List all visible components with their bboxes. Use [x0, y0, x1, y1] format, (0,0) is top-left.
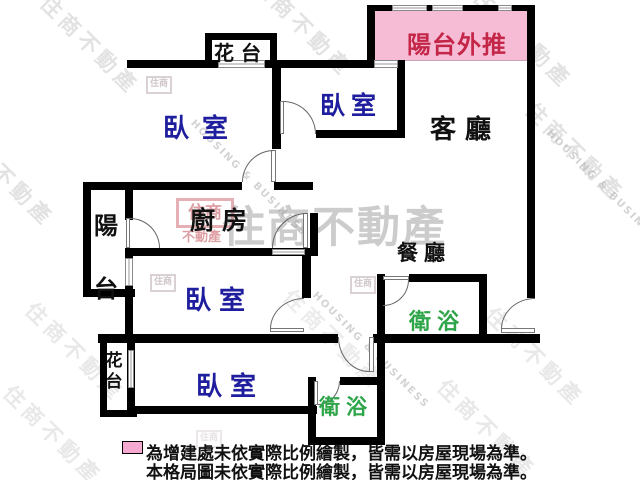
- wall: [397, 60, 405, 138]
- legend-pink-swatch: [122, 441, 143, 454]
- window: [392, 5, 427, 11]
- entrance-door-swing-arc: [501, 298, 535, 329]
- wall: [125, 190, 133, 220]
- watermark-logo-small: 住商: [350, 276, 376, 294]
- wall: [98, 334, 338, 343]
- watermark-brand-diagonal: 住商不動產: [0, 120, 62, 233]
- label-balcony-extension: 陽台外推: [407, 25, 507, 60]
- window: [125, 258, 133, 286]
- label-living-room: 客廳: [430, 109, 500, 146]
- wall: [310, 213, 318, 256]
- door-swing-arc: [283, 101, 316, 134]
- window: [374, 60, 398, 68]
- door-swing-arc: [383, 280, 409, 306]
- label-dining-room: 餐廳: [397, 237, 451, 267]
- door-swing-arc: [130, 218, 160, 248]
- wall: [409, 274, 487, 282]
- watermark-brand-diagonal: 住商不動產: [0, 378, 110, 480]
- door-swing-arc: [242, 150, 274, 182]
- wall: [302, 248, 311, 298]
- window: [432, 5, 463, 11]
- label-flower-bed-left: 花台: [104, 351, 124, 394]
- legend-line2: 本格局圖未依實際比例繪製，皆需以房屋現場為準。: [146, 458, 537, 480]
- label-bathroom2: 衛浴: [319, 391, 373, 421]
- label-bedroom1: 臥室: [163, 108, 241, 145]
- door-leaf: [369, 337, 374, 372]
- wall: [127, 406, 317, 414]
- label-kitchen: 廚房: [190, 201, 254, 237]
- watermark-logo-small: 住商: [150, 274, 176, 292]
- label-flower-bed-top: 花台: [214, 37, 268, 66]
- window: [498, 5, 512, 11]
- wall: [367, 5, 375, 60]
- wall: [83, 182, 91, 297]
- wall: [270, 33, 277, 60]
- watermark-brand-diagonal: 住商不動產: [479, 300, 592, 413]
- watermark-logo-small: 住商: [146, 76, 172, 94]
- wall: [274, 182, 313, 190]
- wall: [83, 182, 242, 190]
- door-swing-arc: [270, 298, 304, 329]
- label-bedroom2: 臥室: [320, 86, 382, 122]
- label-bathroom1: 衛浴: [409, 304, 465, 336]
- sliding-door-threshold: [272, 249, 305, 255]
- wall: [316, 130, 405, 138]
- window: [128, 350, 134, 388]
- floor-plan: 住商不動產 住商不動產 住商不動產 住商不動產 住商不動產 住商不動產 住商不動…: [0, 0, 640, 480]
- wall: [479, 274, 487, 338]
- wall: [527, 5, 535, 298]
- watermark-brand-diagonal: 住商不動產: [34, 0, 147, 101]
- label-bedroom4: 臥室: [196, 366, 264, 403]
- label-balcony: 陽台: [93, 195, 119, 321]
- label-bedroom3: 臥室: [185, 280, 253, 317]
